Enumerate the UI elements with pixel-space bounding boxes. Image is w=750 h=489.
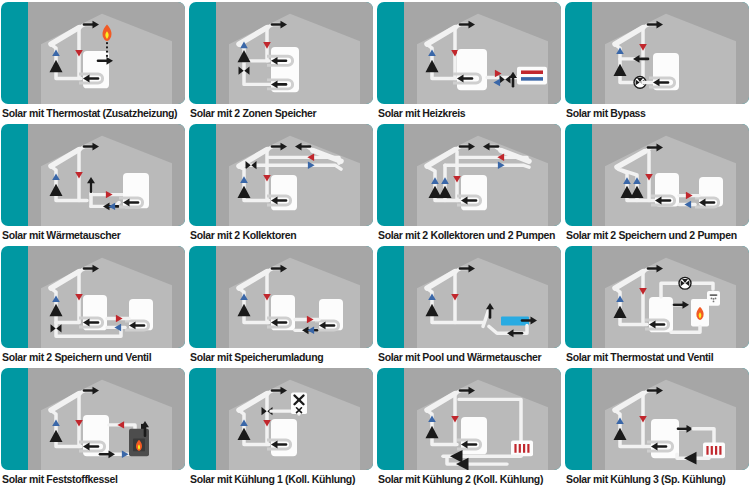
tile-caption: Solar mit 2 Speichern und 2 Pumpen bbox=[565, 226, 749, 244]
tile-caption: Solar mit Thermostat und Ventil bbox=[565, 348, 749, 366]
solar-scheme-grid: Solar mit Thermostat (Zusatzheizung)Sola… bbox=[0, 0, 750, 488]
scheme-tile-8[interactable]: Solar mit 2 Speichern und 2 Pumpen bbox=[565, 124, 749, 244]
scheme-thumbnail[interactable] bbox=[565, 2, 749, 104]
scheme-tile-14[interactable]: Solar mit Kühlung 1 (Koll. Kühlung) bbox=[189, 368, 373, 488]
scheme-thumbnail[interactable] bbox=[189, 368, 373, 470]
tile-caption: Solar mit Kühlung 1 (Koll. Kühlung) bbox=[189, 470, 373, 488]
radiator-icon bbox=[703, 443, 725, 459]
scheme-thumbnail[interactable] bbox=[189, 124, 373, 226]
shower-icon bbox=[713, 301, 715, 303]
tile-caption: Solar mit 2 Kollektoren bbox=[189, 226, 373, 244]
storage-tank bbox=[271, 419, 297, 456]
scheme-diagram bbox=[377, 2, 561, 104]
tile-caption: Solar mit Feststoffkessel bbox=[1, 470, 185, 488]
scheme-diagram bbox=[377, 368, 561, 470]
scheme-thumbnail[interactable] bbox=[565, 124, 749, 226]
scheme-diagram bbox=[1, 124, 185, 226]
scheme-diagram bbox=[189, 368, 373, 470]
scheme-tile-16[interactable]: Solar mit Kühlung 3 (Sp. Kühlung) bbox=[565, 368, 749, 488]
tile-caption: Solar mit Thermostat (Zusatzheizung) bbox=[1, 104, 185, 122]
scheme-tile-7[interactable]: Solar mit 2 Kollektoren und 2 Pumpen bbox=[377, 124, 561, 244]
tile-caption: Solar mit Heizkreis bbox=[377, 104, 561, 122]
radiator-icon bbox=[521, 77, 543, 81]
scheme-diagram bbox=[1, 246, 185, 348]
shower-icon bbox=[713, 298, 715, 300]
shower-icon bbox=[715, 298, 717, 300]
tile-caption: Solar mit Speicherumladung bbox=[189, 348, 373, 366]
scheme-tile-15[interactable]: Solar mit Kühlung 2 (Koll. Kühlung) bbox=[377, 368, 561, 488]
scheme-tile-11[interactable]: Solar mit Pool und Wärmetauscher bbox=[377, 246, 561, 366]
scheme-tile-12[interactable]: Solar mit Thermostat und Ventil bbox=[565, 246, 749, 366]
scheme-thumbnail[interactable] bbox=[1, 2, 185, 104]
tile-caption: Solar mit Pool und Wärmetauscher bbox=[377, 348, 561, 366]
tile-caption: Solar mit Kühlung 3 (Sp. Kühlung) bbox=[565, 470, 749, 488]
shower-icon bbox=[711, 298, 713, 300]
scheme-thumbnail[interactable] bbox=[1, 124, 185, 226]
tile-caption: Solar mit 2 Speichern und Ventil bbox=[1, 348, 185, 366]
scheme-thumbnail[interactable] bbox=[565, 368, 749, 470]
scheme-diagram bbox=[565, 124, 749, 226]
scheme-tile-2[interactable]: Solar mit 2 Zonen Speicher bbox=[189, 2, 373, 122]
scheme-tile-6[interactable]: Solar mit 2 Kollektoren bbox=[189, 124, 373, 244]
scheme-diagram bbox=[1, 2, 185, 104]
tile-caption: Solar mit 2 Kollektoren und 2 Pumpen bbox=[377, 226, 561, 244]
scheme-tile-9[interactable]: Solar mit 2 Speichern und Ventil bbox=[1, 246, 185, 366]
scheme-thumbnail[interactable] bbox=[189, 2, 373, 104]
scheme-thumbnail[interactable] bbox=[377, 124, 561, 226]
tile-caption: Solar mit Wärmetauscher bbox=[1, 226, 185, 244]
scheme-tile-1[interactable]: Solar mit Thermostat (Zusatzheizung) bbox=[1, 2, 185, 122]
scheme-thumbnail[interactable] bbox=[377, 368, 561, 470]
scheme-thumbnail[interactable] bbox=[377, 2, 561, 104]
radiator-icon bbox=[521, 70, 543, 74]
scheme-tile-13[interactable]: Solar mit Feststoffkessel bbox=[1, 368, 185, 488]
scheme-diagram bbox=[189, 246, 373, 348]
scheme-diagram bbox=[189, 2, 373, 104]
scheme-diagram bbox=[565, 368, 749, 470]
scheme-tile-3[interactable]: Solar mit Heizkreis bbox=[377, 2, 561, 122]
scheme-thumbnail[interactable] bbox=[1, 246, 185, 348]
scheme-diagram bbox=[1, 368, 185, 470]
scheme-diagram bbox=[565, 246, 749, 348]
scheme-thumbnail[interactable] bbox=[1, 368, 185, 470]
scheme-diagram bbox=[189, 124, 373, 226]
scheme-thumbnail[interactable] bbox=[377, 246, 561, 348]
scheme-tile-4[interactable]: Solar mit Bypass bbox=[565, 2, 749, 122]
radiator-icon bbox=[511, 441, 533, 457]
scheme-thumbnail[interactable] bbox=[189, 246, 373, 348]
scheme-diagram bbox=[377, 124, 561, 226]
tile-caption: Solar mit Bypass bbox=[565, 104, 749, 122]
tile-caption: Solar mit 2 Zonen Speicher bbox=[189, 104, 373, 122]
scheme-tile-5[interactable]: Solar mit Wärmetauscher bbox=[1, 124, 185, 244]
radiator-icon bbox=[517, 67, 547, 85]
scheme-diagram bbox=[565, 2, 749, 104]
scheme-diagram bbox=[377, 246, 561, 348]
tile-caption: Solar mit Kühlung 2 (Koll. Kühlung) bbox=[377, 470, 561, 488]
scheme-tile-10[interactable]: Solar mit Speicherumladung bbox=[189, 246, 373, 366]
scheme-thumbnail[interactable] bbox=[565, 246, 749, 348]
